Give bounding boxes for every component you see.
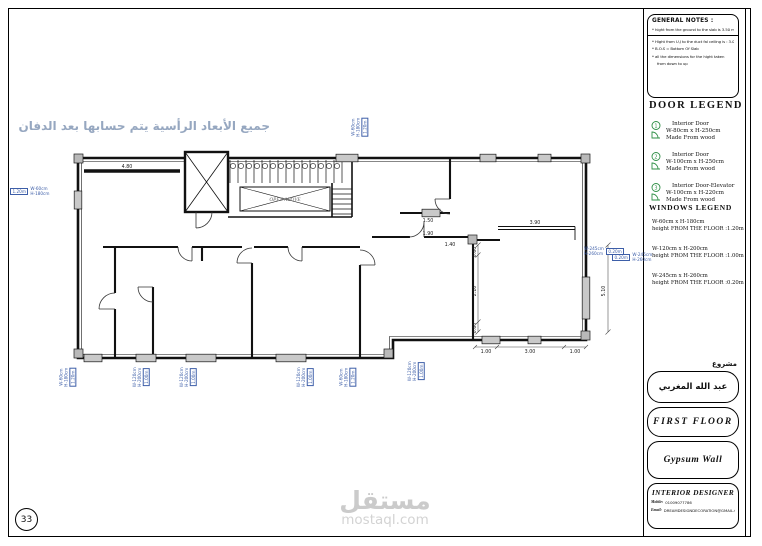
door-icon: 3 (649, 183, 663, 201)
mobile-value: 01009077786 (665, 500, 692, 505)
door-swings (99, 199, 450, 309)
window-tag: 0.20m W-245cmH-260cm (612, 252, 652, 263)
wall-type-box: Gypsum Wall (647, 441, 739, 479)
window-tag: W-60cm H-180cm 1.20m (338, 368, 356, 387)
window-tag: W-120cm H-200cm 1.00m (296, 367, 314, 387)
general-notes-box: GENERAL NOTES : * hight from the ground … (647, 14, 739, 98)
door-material: Made From wood (666, 135, 720, 142)
door-number: 3 (654, 185, 657, 191)
door-legend-item: 3 Interior Door-Elevator W-100cm x H-220… (649, 183, 741, 204)
designer-box: INTERIOR DESIGNER Mobile: 01009077786 Em… (647, 483, 739, 529)
window-legend-item: 3 WIN W-245cm x H-260cm height FROM THE … (649, 273, 741, 288)
door-material: Made From wood (666, 166, 724, 173)
door-size: W-100cm x H-250cm (666, 159, 724, 166)
window-height-box: 1.00m (307, 368, 314, 386)
window-tag: W-60cm H-180cm 1.20m (58, 368, 76, 387)
note-line: from down to up (652, 61, 734, 66)
elevator-shaft (185, 152, 228, 212)
mobile-label: Mobile: (651, 500, 663, 505)
window-tag: W-60cm H-180cm 1.20m (350, 118, 368, 137)
door-legend-item: 1 Interior Door W-80cm x H-250cm Made Fr… (649, 121, 741, 142)
window-height-box: 1.20m (69, 368, 76, 386)
stair-tread-numbers (230, 163, 339, 168)
email-label: Email: (651, 508, 662, 513)
dimension-label: 5.10 (601, 286, 607, 297)
window-tag-line: H-180cm (30, 191, 49, 196)
window-height-box: 1.00m (418, 362, 425, 380)
window-height: height FROM THE FLOOR :0.20m (652, 280, 744, 287)
window-height-box: 0.20m (612, 254, 630, 261)
window-tag-line: H-260cm (584, 251, 603, 256)
window-height-box: 1.00m (143, 368, 150, 386)
watermark-arabic: مستقل (318, 488, 452, 513)
window-legend-item: 2 WIN W-120cm x H-200cm height FROM THE … (649, 246, 741, 261)
dimension-label: 0.60 (472, 323, 478, 334)
floor-title: FIRST FLOOR (653, 417, 733, 427)
window-height-box: 1.00m (190, 368, 197, 386)
dimension-label: 1.40 (445, 242, 456, 248)
dimension-label: 3.00 (525, 349, 536, 355)
project-label: مشروع (647, 360, 737, 368)
designer-title: INTERIOR DESIGNER (651, 488, 735, 497)
window-size: W-120cm x H-200cm (652, 246, 744, 253)
staircase: OPEN ABOVE (228, 158, 352, 217)
watermark: مستقل mostaql.com (318, 488, 452, 528)
watermark-latin: mostaql.com (318, 514, 452, 528)
note-line: * Hight from U.J to the duct fal ceiling… (652, 39, 734, 44)
window-height-box: 1.20m (10, 188, 28, 195)
window-size: W-60cm x H-180cm (652, 219, 744, 226)
door-legend-item: 2 Interior Door W-100cm x H-250cm Made F… (649, 152, 741, 173)
door-size: W-100cm x H-220cm (666, 190, 734, 197)
arabic-note: جميع الأبعاد الرأسية يتم حسابها بعد الدف… (80, 119, 270, 133)
window-height-box: 1.20m (361, 118, 368, 136)
dimension-label: 4.80 (122, 164, 133, 170)
dimension-label: 3.90 (530, 220, 541, 226)
project-name-box: عبد الله المغربي (647, 371, 739, 403)
page-number-badge: 33 (15, 508, 38, 531)
wall-type: Gypsum Wall (664, 455, 723, 465)
project-name: عبد الله المغربي (659, 382, 728, 392)
email-value: DREAMDESIGNDECORATION@GMAIL.COM (664, 508, 735, 513)
dimension-label: 1.00 (570, 349, 581, 355)
note-line: * all the dimensions for the hight taken (652, 54, 734, 59)
door-name: Interior Door (666, 121, 720, 128)
general-notes-title: GENERAL NOTES : (652, 18, 734, 24)
dimension-label: 2.10 (472, 286, 478, 297)
dimension-label: 1.00 (481, 349, 492, 355)
window-height: height FROM THE FLOOR :1.00m (652, 253, 744, 260)
window-tag: W-120cm H-200cm 1.00m (179, 367, 197, 387)
stair-void-label: OPEN ABOVE (269, 197, 301, 203)
drawing-sheet: OPEN ABOVE (0, 0, 762, 546)
window-tag: W-120cm H-200cm 1.00m (132, 367, 150, 387)
window-legend-item: 1 WIN W-60cm x H-180cm height FROM THE F… (649, 219, 741, 234)
dimension-label: 1.90 (423, 231, 434, 237)
window-height: height FROM THE FLOOR :1.20m (652, 226, 744, 233)
door-number: 2 (654, 154, 657, 160)
note-line: * hight from the ground to the slab is 3… (652, 27, 734, 32)
panel-right-divider (745, 9, 746, 536)
panel-left-divider (643, 9, 644, 536)
note-line: * B.O.S = Bottom Of Slab (652, 46, 734, 51)
door-legend-title: DOOR LEGEND (649, 100, 743, 111)
door-icon: 1 (649, 121, 663, 139)
dimension-label: 0.60 (472, 247, 478, 258)
window-tag: W-120cm H-200cm 1.00m (407, 361, 425, 381)
interior-walls (103, 158, 575, 358)
page-number: 33 (21, 515, 32, 525)
door-icon: 2 (649, 152, 663, 170)
windows-legend-title: WINDOWS LEGEND (649, 203, 732, 212)
notes-divider (648, 35, 738, 36)
floor-title-box: FIRST FLOOR (647, 407, 739, 437)
door-name: Interior Door-Elevator (666, 183, 734, 190)
door-name: Interior Door (666, 152, 724, 159)
window-size: W-245cm x H-260cm (652, 273, 744, 280)
floor-plan: OPEN ABOVE (30, 95, 635, 435)
window-height-box: 1.20m (349, 368, 356, 386)
door-number: 1 (654, 123, 657, 129)
window-tag: 1.20m W-60cmH-180cm (10, 186, 49, 197)
dimension-label: 1.50 (423, 218, 434, 224)
door-size: W-80cm x H-250cm (666, 128, 720, 135)
